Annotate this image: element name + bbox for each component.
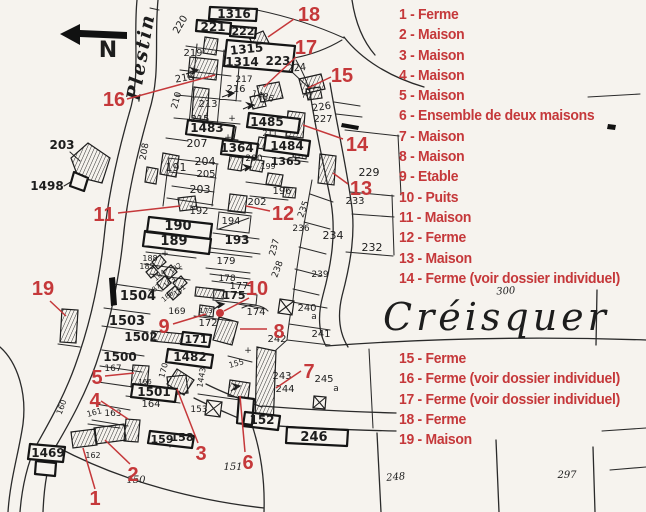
parcel-label: 174 [246, 307, 265, 318]
parcel-label: 179 [216, 256, 235, 267]
parcel-label: + [224, 133, 232, 143]
red-marker-number-3: 3 [195, 443, 206, 465]
parcel-label: 207 [187, 137, 208, 150]
legend-item: 11 - Maison [399, 208, 632, 228]
parcel-label: 1501 [137, 385, 170, 399]
red-marker-number-16: 16 [103, 89, 125, 111]
parcel-label: 216 [226, 84, 245, 95]
legend-item: 4 - Maison [399, 66, 632, 86]
legend-top: 1 - Ferme2 - Maison3 - Maison4 - Maison5… [399, 5, 632, 289]
parcel-label: + [228, 114, 236, 124]
parcel-label: 162 [85, 451, 100, 460]
legend-item: 19 - Maison [399, 430, 632, 450]
red-marker-number-1: 1 [89, 488, 100, 510]
legend-bottom: 15 - Ferme16 - Ferme (voir dossier indiv… [399, 349, 632, 450]
parcel-label: 234 [323, 229, 344, 242]
parcel-label: 151 [223, 462, 242, 473]
parcel-label: 243 [272, 371, 291, 382]
parcel-label: 1316 [217, 7, 250, 21]
red-marker-number-19: 19 [32, 278, 54, 300]
parcel-label: 1482 [173, 350, 206, 364]
red-marker-number-8: 8 [273, 321, 284, 343]
parcel-label: a [333, 384, 339, 394]
legend-item: 18 - Ferme [399, 410, 632, 430]
parcel-label: 192 [189, 206, 208, 217]
red-marker-number-12: 12 [272, 203, 294, 225]
parcel-label: 1500 [103, 350, 136, 364]
legend-item: 8 - Maison [399, 147, 632, 167]
parcel-label: 1364 [220, 141, 253, 155]
parcel-label: 219 [183, 48, 202, 59]
parcel-label: 203 [190, 183, 211, 196]
red-marker-number-13: 13 [350, 178, 372, 200]
parcel-label: 245 [314, 374, 333, 385]
parcel-label: 189 [160, 234, 187, 249]
parcel-label: 239 [311, 270, 328, 280]
parcel-label: 167 [104, 364, 121, 374]
parcel-label: 193 [224, 233, 249, 247]
parcel-label: 158 [171, 431, 194, 444]
parcel-label: 169 [168, 307, 185, 317]
red-marker-number-4: 4 [89, 390, 101, 412]
parcel-label: 194 [221, 216, 240, 227]
parcel-label: 185 [139, 262, 154, 271]
parcel-label: 205 [196, 169, 215, 180]
parcel-label: 224 [287, 62, 307, 75]
parcel-label: + [161, 249, 169, 259]
parcel-label: 248 [385, 471, 406, 484]
parcel-label: 196 [272, 186, 291, 197]
parcel-label: 1484 [270, 139, 303, 153]
parcel-label: 153 [190, 405, 207, 415]
legend-item: 9 - Etable [399, 167, 632, 187]
parcel-label: 1485 [250, 115, 283, 129]
legend-item: 17 - Ferme (voir dossier individuel) [399, 390, 632, 410]
parcel-label: 211 [262, 129, 277, 138]
parcel-label: 213 [198, 99, 217, 110]
parcel-label: 203 [49, 138, 74, 152]
parcel-label: 204 [195, 155, 216, 168]
parcel-label: 172 [198, 318, 217, 329]
red-marker-number-2: 2 [127, 464, 138, 486]
parcel-label: 297 [556, 470, 577, 481]
parcel-label: 175 [223, 289, 246, 302]
red-marker-number-11: 11 [93, 204, 114, 226]
parcel-label: 236 [292, 224, 309, 234]
red-marker-number-7: 7 [303, 361, 314, 383]
red-marker-number-10: 10 [246, 278, 268, 300]
north-label: N [99, 38, 117, 63]
parcel-label: 246 [300, 430, 327, 445]
parcel-label: 1503 [109, 314, 145, 329]
parcel-label: 1314 [225, 55, 258, 69]
parcel-label: 221 [200, 20, 225, 34]
parcel-label: 222 [232, 25, 255, 38]
cadastral-map-page: 1316221222131513142232242252202192182172… [0, 0, 646, 512]
red-marker-number-9: 9 [158, 316, 169, 338]
parcel-label: 152 [249, 413, 274, 427]
parcel-label: 173 [199, 307, 212, 315]
parcel-label: 1483 [190, 121, 223, 135]
parcel-label: 163 [104, 409, 121, 419]
parcel-label: 1502 [124, 330, 157, 344]
parcel-label: 241 [311, 329, 330, 340]
legend-item: 10 - Puits [399, 188, 632, 208]
legend-item: 2 - Maison [399, 25, 632, 45]
legend-item: 3 - Maison [399, 46, 632, 66]
red-marker-number-18: 18 [298, 4, 320, 26]
red-marker-number-5: 5 [91, 367, 102, 389]
legend-item: 1 - Ferme [399, 5, 632, 25]
legend-item: 16 - Ferme (voir dossier individuel) [399, 369, 632, 389]
legend-item: 13 - Maison [399, 249, 632, 269]
parcel-label: 190 [164, 219, 191, 234]
legend-item: 5 - Maison [399, 86, 632, 106]
parcel-label: 191 [166, 161, 187, 174]
well-dot [216, 309, 224, 317]
red-marker-number-17: 17 [295, 37, 317, 59]
red-marker-number-14: 14 [346, 134, 369, 156]
place-name-label: Créisquer [383, 295, 610, 339]
parcel-label: 199 [260, 162, 275, 171]
parcel-label: 171 [185, 333, 208, 346]
parcel-label: a [311, 312, 317, 322]
parcel-label: 232 [362, 241, 383, 254]
legend-item: 14 - Ferme (voir dossier individuel) [399, 269, 632, 289]
parcel-label: + [244, 346, 252, 356]
parcel-label: 227 [313, 114, 332, 125]
legend-item: 6 - Ensemble de deux maisons [399, 106, 632, 126]
legend-item: 7 - Maison [399, 127, 632, 147]
parcel-label: 1498 [30, 179, 63, 193]
legend-item: 12 - Ferme [399, 228, 632, 248]
red-marker-number-15: 15 [331, 65, 353, 87]
legend-item: 15 - Ferme [399, 349, 632, 369]
parcel-label: 164 [141, 399, 160, 410]
parcel-label: 1469 [31, 446, 64, 460]
red-marker-number-6: 6 [242, 452, 253, 474]
